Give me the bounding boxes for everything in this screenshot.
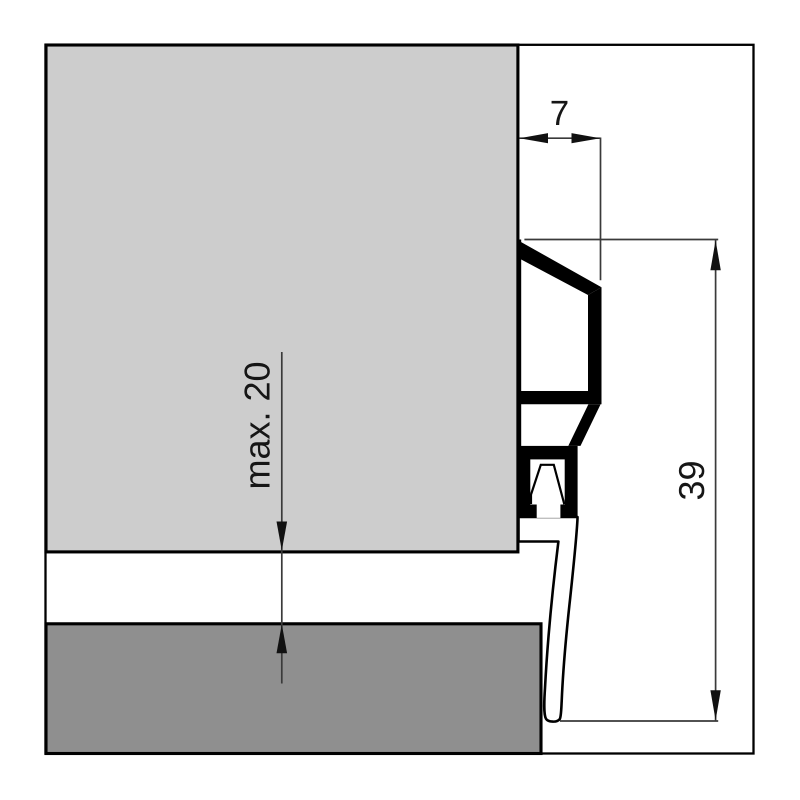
svg-text:39: 39	[671, 460, 712, 500]
svg-text:7: 7	[550, 94, 569, 133]
svg-text:max. 20: max. 20	[237, 361, 278, 489]
